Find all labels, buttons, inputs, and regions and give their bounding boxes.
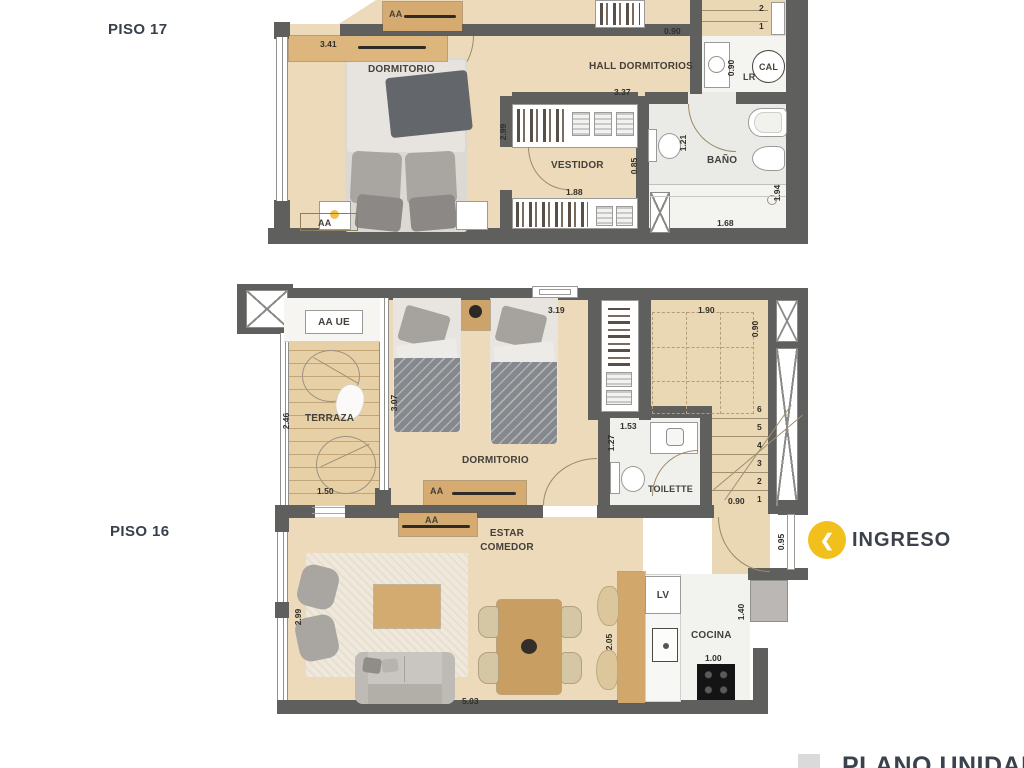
ac-vent-line [358, 46, 426, 49]
dimension: 2.46 [281, 410, 291, 432]
coffee-table [374, 585, 440, 628]
lamp [469, 305, 482, 318]
drawer-stack [594, 112, 612, 136]
wall [700, 416, 712, 508]
ac-vent-line [404, 15, 456, 18]
room-label-cocina: COCINA [691, 630, 732, 641]
wall [275, 602, 289, 618]
stair-step-number: 1 [757, 494, 762, 504]
stair-projection [652, 312, 754, 414]
stair-projection-line [652, 347, 754, 348]
dimension: 3.41 [320, 39, 337, 49]
ac-condenser-unit: AA UE [305, 310, 363, 334]
wall [375, 488, 391, 512]
drawer-stack [572, 112, 590, 136]
ingreso-badge: ❮ [808, 521, 846, 559]
faucet [663, 643, 669, 649]
window [276, 37, 288, 201]
dimension: 1.27 [606, 432, 616, 454]
stair-projection-line [720, 312, 721, 414]
kitchen-counter-wood [618, 572, 645, 703]
bed-blanket [491, 362, 557, 444]
stair-step-number: 4 [757, 440, 762, 450]
room-label-hall: HALL DORMITORIOS [589, 61, 693, 72]
ac-vent-line [452, 492, 516, 495]
bar-stool [597, 586, 619, 626]
dimension: 1.68 [717, 218, 734, 228]
drawer-stack [616, 112, 634, 136]
dimension: 0.90 [728, 496, 745, 506]
dimension: 1.40 [736, 601, 746, 623]
toilet-bowl [621, 466, 645, 492]
ingreso-arrow-icon: ❮ [820, 532, 834, 549]
wall [275, 516, 289, 532]
drawer-stack [606, 390, 632, 405]
dimension: 1.53 [620, 421, 637, 431]
bar-stool [596, 650, 618, 690]
stair-step-line [712, 490, 768, 491]
wall [639, 298, 651, 420]
bed-blanket [385, 70, 473, 138]
clothes-rack [516, 202, 588, 227]
toilet-tank [648, 129, 657, 162]
nightstand [456, 201, 488, 230]
dimension: 0.85 [629, 155, 639, 177]
ac-label: AA [430, 486, 443, 496]
stair-step-number: 3 [757, 458, 762, 468]
clothes-rack [608, 308, 630, 366]
dimension: 0.90 [750, 318, 760, 340]
stair-step-number: 1 [759, 21, 764, 31]
stair-step-number: 2 [757, 476, 762, 486]
floorplan-canvas: 2 1 CAL LR AA AA DORMITORIO HALL DORMIT [0, 0, 1024, 768]
drawer-stack [606, 372, 632, 387]
wall [598, 416, 610, 508]
shower-screen-line [650, 196, 786, 197]
room-label-dormitorio: DORMITORIO [368, 64, 435, 75]
window [277, 618, 288, 700]
wall [736, 92, 786, 104]
sofa-cushion-divider [404, 656, 405, 682]
wall [588, 298, 602, 420]
shaft [650, 192, 670, 233]
dishwasher: LV [645, 576, 681, 614]
dining-chair [478, 652, 499, 684]
dining-chair [561, 606, 582, 638]
stair-step-line [712, 454, 768, 455]
stair-step-number: 6 [757, 404, 762, 414]
sofa-pillow [381, 658, 398, 673]
wall [597, 505, 714, 518]
dimension: 0.90 [664, 26, 681, 36]
room-label-bano: BAÑO [707, 155, 737, 166]
pillow [354, 194, 403, 233]
dimension: 0.90 [726, 57, 736, 79]
boiler-label: CAL [759, 62, 778, 72]
shaft [246, 290, 288, 328]
sofa-arm [442, 652, 455, 704]
sofa-back [355, 684, 455, 704]
dimension: 1.90 [698, 305, 715, 315]
stair-step-line [712, 472, 768, 473]
dimension: 1.00 [705, 653, 722, 663]
ac-label: AA [318, 218, 331, 228]
window [277, 532, 288, 602]
dimension: 3.37 [614, 87, 631, 97]
wall [778, 500, 808, 515]
washer-drum [708, 56, 725, 73]
stair-projection-line [652, 381, 754, 382]
dimension: 1.88 [566, 187, 583, 197]
room-label-toilette: TOILETTE [648, 484, 693, 494]
ac-condenser-label: AA UE [318, 317, 350, 328]
entry-door-leaf [787, 514, 795, 570]
drawer-stack [616, 206, 633, 226]
window [379, 298, 389, 490]
dimension: 3.19 [548, 305, 565, 315]
sink-basin [666, 428, 684, 446]
dimension: 5.03 [462, 696, 479, 706]
wall [645, 92, 688, 104]
bathtub-inner [754, 112, 782, 133]
stair-projection-line [686, 312, 687, 414]
table-centerpiece [521, 639, 537, 654]
ac-label: AA [389, 9, 402, 19]
threshold-line [312, 507, 345, 508]
threshold-line [312, 513, 345, 514]
room-label-terraza: TERRAZA [305, 413, 354, 424]
dining-chair [561, 652, 582, 684]
drawer-stack [596, 206, 613, 226]
wall-vent-inner [539, 289, 571, 295]
laundry-label: LR [743, 72, 755, 82]
ingreso-label: INGRESO [852, 529, 951, 552]
dimension: 3.07 [389, 392, 399, 414]
room-label-estar: ESTAR [452, 528, 562, 539]
dimension: 1.21 [678, 132, 688, 154]
cooktop [697, 664, 735, 700]
dimension: 1.50 [317, 486, 334, 496]
toilet-tank [610, 462, 620, 494]
boiler-circle: CAL [752, 50, 785, 83]
dimension: 2.99 [498, 121, 508, 143]
floor-title-piso16: PISO 16 [110, 523, 170, 540]
stair-step-line [712, 436, 768, 437]
footer-logo-partial [798, 754, 820, 768]
dimension: 0.95 [776, 531, 786, 553]
dishwasher-label: LV [657, 590, 669, 601]
wall [786, 0, 808, 244]
stair-step-line [712, 418, 768, 419]
ac-label: AA [425, 515, 438, 525]
footer-title: PLANO UNIDAD [842, 752, 1024, 768]
room-label-dormitorio: DORMITORIO [462, 455, 529, 466]
dimension: 1.94 [772, 182, 782, 204]
room-label-vestidor: VESTIDOR [551, 160, 604, 171]
wall [277, 700, 768, 714]
stair-step-number: 5 [757, 422, 762, 432]
p17-vestidor-door-gap [500, 147, 512, 190]
wall [690, 0, 702, 94]
p17-landing-window [771, 2, 785, 35]
floor-title-piso17: PISO 17 [108, 21, 168, 38]
room-label-comedor: COMEDOR [452, 542, 562, 553]
dining-chair [478, 606, 499, 638]
bidet [752, 146, 785, 171]
clothes-rack [517, 109, 567, 142]
bed-blanket [394, 358, 460, 432]
wall [274, 200, 290, 244]
dimension: 2.05 [604, 631, 614, 653]
dimension: 2.99 [293, 606, 303, 628]
pillow [409, 194, 458, 232]
fridge [750, 580, 788, 622]
stair-step-number: 2 [759, 3, 764, 13]
shaft [776, 300, 798, 342]
sofa-pillow [362, 657, 382, 674]
clothes-rack [600, 3, 640, 25]
